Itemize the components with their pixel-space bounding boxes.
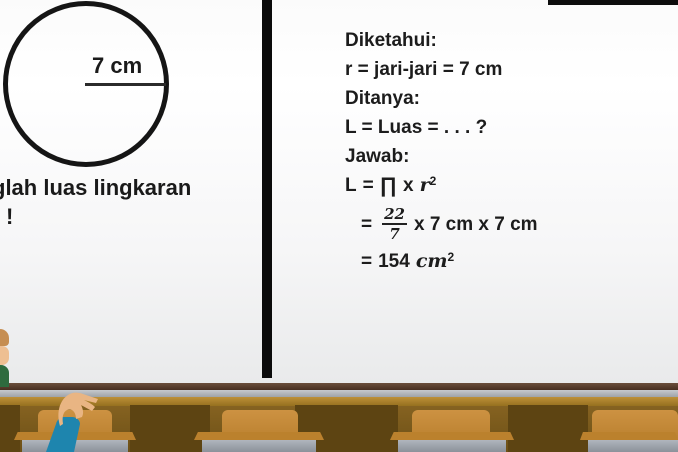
pi-symbol: ∏: [380, 171, 397, 200]
equals-sign: =: [361, 247, 372, 276]
fraction-22-7: 22 7: [382, 207, 407, 242]
solution-line-jawab: Jawab:: [345, 142, 538, 171]
radius-line: [85, 83, 166, 86]
teacher-hair: [0, 329, 9, 346]
equals-sign: =: [361, 210, 372, 239]
result-value: 154: [378, 247, 410, 276]
student-desk: [588, 440, 678, 452]
times-sign: x: [403, 171, 414, 200]
desk-gap-shadow: [508, 405, 588, 452]
solution-line-radius: r = jari-jari = 7 cm: [345, 55, 538, 84]
student-desk: [202, 440, 316, 452]
fraction-denominator: 7: [389, 225, 399, 242]
radius-variable: r2: [420, 171, 437, 200]
result-unit: cm2: [416, 247, 454, 276]
solution-line-luas: L = Luas = . . . ?: [345, 113, 538, 142]
exponent: 2: [448, 250, 455, 264]
solution-line-diketahui: Diketahui:: [345, 26, 538, 55]
formula-lhs: L: [345, 171, 357, 200]
exponent: 2: [430, 174, 437, 188]
board-divider: [262, 0, 272, 378]
teacher-face: [0, 346, 9, 365]
solution-block: Diketahui: r = jari-jari = 7 cm Ditanya:…: [345, 26, 538, 276]
teacher-shirt: [0, 365, 9, 387]
equals-sign: =: [363, 171, 374, 200]
teacher-figure: [0, 329, 9, 387]
student-raised-arm: [36, 386, 106, 452]
question-text: glah luas lingkaran: [0, 175, 191, 201]
formula-result: = 154 cm2: [345, 247, 538, 276]
formula-area: L = ∏ x r2: [345, 171, 538, 200]
video-frame: 7 cm glah luas lingkaran ! Diketahui: r …: [0, 0, 678, 452]
formula-substitution: = 22 7 x 7 cm x 7 cm: [345, 201, 538, 247]
desk-gap-shadow: [130, 405, 210, 452]
fraction-numerator: 22: [382, 207, 407, 223]
substitution-terms: x 7 cm x 7 cm: [414, 210, 538, 239]
whiteboard: 7 cm glah luas lingkaran ! Diketahui: r …: [0, 0, 678, 383]
student-desk: [398, 440, 506, 452]
desk-top-edge: [194, 432, 324, 440]
board-frame-edge: [548, 0, 678, 5]
solution-line-ditanya: Ditanya:: [345, 84, 538, 113]
sleeve-shape: [46, 417, 80, 452]
desk-top-edge: [390, 432, 514, 440]
desk-top-edge: [580, 432, 678, 440]
desk-gap-shadow: [0, 405, 20, 452]
question-exclamation: !: [6, 204, 13, 230]
radius-label: 7 cm: [92, 53, 142, 79]
